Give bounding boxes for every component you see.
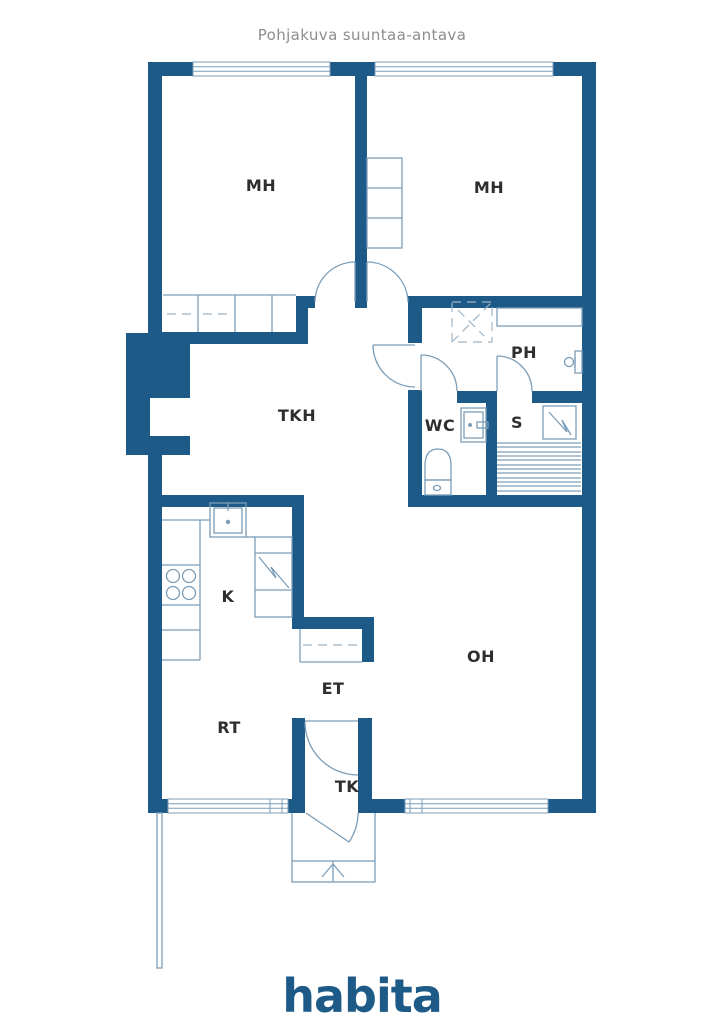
room-label-sauna: S [511, 413, 523, 432]
door-ph [373, 345, 415, 387]
interior-walls [148, 62, 596, 813]
room-label-tkh: TKH [278, 406, 316, 425]
et-wardrobe [300, 629, 362, 662]
door-mh-right [367, 262, 408, 302]
fridge-icon [259, 557, 289, 588]
stove-burners-icon [167, 570, 196, 600]
room-label-wc: WC [425, 416, 455, 435]
kitchen-right-column [255, 537, 292, 617]
toilet-icon [425, 449, 451, 495]
entrance-porch [292, 813, 375, 882]
room-label-oh: OH [467, 647, 495, 666]
washbasin-icon [461, 408, 488, 442]
chimney-block [126, 333, 190, 455]
room-label-ph: PH [511, 343, 537, 362]
window-mh-right [375, 62, 553, 76]
room-label-mh-left: MH [246, 176, 276, 195]
door-arcs [305, 262, 532, 842]
room-label-mh-right: MH [474, 178, 504, 197]
door-tk-entrance [306, 813, 358, 842]
room-label-et: ET [322, 679, 345, 698]
washer-tap-icon [565, 351, 583, 373]
window-rt [168, 799, 288, 813]
room-label-rt: RT [217, 718, 241, 737]
kitchen-sink-icon [210, 503, 246, 537]
kitchen-fixtures [162, 503, 292, 660]
door-tk-inner [305, 721, 358, 775]
room-label-kitchen: K [222, 587, 235, 606]
sauna-stove-icon [543, 406, 576, 439]
sauna-benches [497, 443, 581, 491]
plan-title: Pohjakuva suuntaa-antava [258, 26, 467, 44]
wardrobe-mh-left [163, 295, 296, 332]
window-mh-left [193, 62, 330, 76]
shelves-mh-right [367, 158, 402, 248]
window-oh [405, 799, 548, 813]
door-wc [421, 355, 457, 391]
sauna-fixtures [497, 406, 581, 491]
door-mh-left [315, 262, 355, 302]
lot-boundary-line [157, 813, 162, 968]
ph-counter [497, 308, 582, 326]
room-label-tk: TK [335, 777, 359, 796]
floor-plan-page: Pohjakuva suuntaa-antava MH MH PH WC S T… [0, 0, 724, 1024]
floor-plan-drawing: Pohjakuva suuntaa-antava MH MH PH WC S T… [0, 0, 724, 1024]
habita-logo: habita [282, 969, 442, 1023]
